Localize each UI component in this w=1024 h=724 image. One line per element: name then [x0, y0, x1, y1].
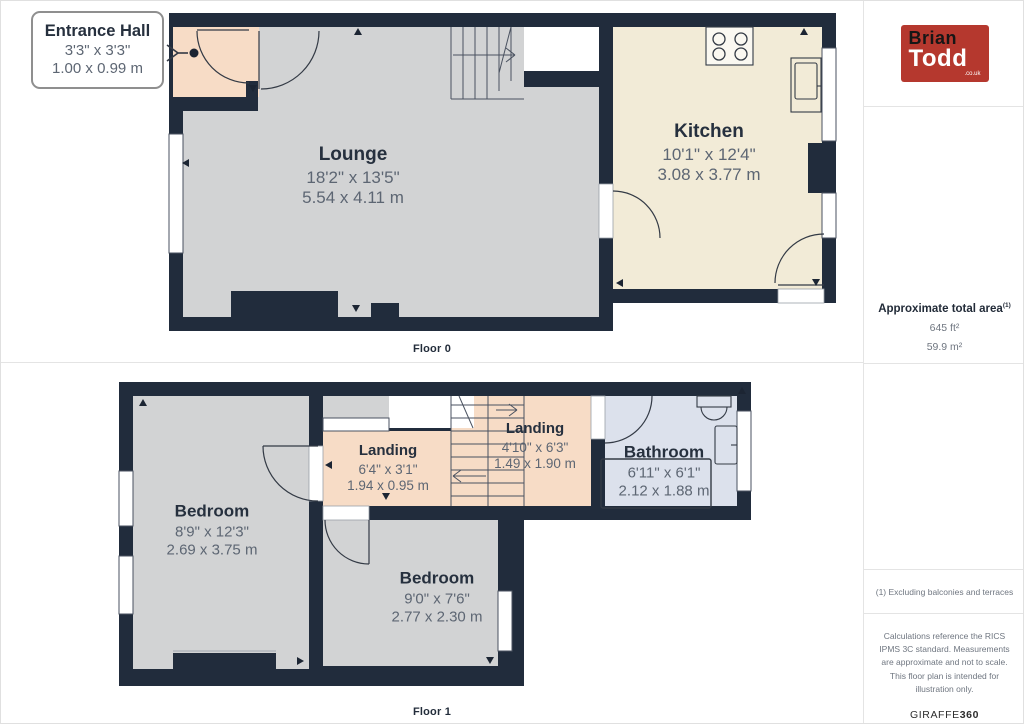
- kitchen-hob: [706, 27, 753, 65]
- room-label-bedroom1: Bedroom 8'9" x 12'3" 2.69 x 3.75 m: [167, 501, 258, 558]
- room-label-bedroom2: Bedroom 9'0" x 7'6" 2.77 x 2.30 m: [392, 568, 483, 625]
- logo-suffix-couk: .co.uk: [909, 71, 981, 77]
- disclaimer-text: Calculations reference the RICS IPMS 3C …: [877, 630, 1012, 696]
- floor1-plan-svg: [1, 364, 863, 724]
- room-label-lounge: Lounge 18'2" x 13'5" 5.54 x 4.11 m: [302, 144, 404, 209]
- logo-line-todd: Todd: [909, 47, 981, 71]
- room-label-bathroom: Bathroom 6'11" x 6'1" 2.12 x 1.88 m: [619, 442, 710, 499]
- floor0-stair-void: [524, 27, 599, 71]
- entrance-hall-callout: Entrance Hall 3'3" x 3'3" 1.00 x 0.99 m: [31, 11, 164, 89]
- brand-360: 360: [960, 709, 979, 721]
- agency-logo-section: Brian Todd .co.uk: [864, 1, 1024, 107]
- floor0-panel: Entrance Hall 3'3" x 3'3" 1.00 x 0.99 m …: [1, 1, 863, 363]
- landing-partition-window: [323, 418, 389, 431]
- total-area-ft: 645 ft²: [930, 322, 960, 334]
- floorplans-area: Entrance Hall 3'3" x 3'3" 1.00 x 0.99 m …: [1, 1, 863, 724]
- floor0-caption: Floor 0: [1, 343, 863, 355]
- sidebar-spacer: [864, 364, 1024, 570]
- callout-dim-imperial: 3'3" x 3'3": [65, 42, 131, 61]
- bedroom1-chimney-breast: [173, 653, 276, 669]
- total-area-section: Approximate total area(1) 645 ft² 59.9 m…: [864, 107, 1024, 364]
- brian-todd-logo: Brian Todd .co.uk: [901, 25, 989, 82]
- info-sidebar: Brian Todd .co.uk Approximate total area…: [863, 1, 1024, 724]
- total-area-m: 59.9 m²: [927, 341, 963, 353]
- callout-room-name: Entrance Hall: [45, 21, 150, 42]
- total-area-footnote-ref: (1): [1003, 302, 1011, 309]
- area-footnote: (1) Excluding balconies and terraces: [864, 570, 1024, 614]
- room-label-landing1: Landing 6'4" x 3'1" 1.94 x 0.95 m: [347, 442, 429, 494]
- disclaimer-section: Calculations reference the RICS IPMS 3C …: [864, 614, 1024, 724]
- giraffe360-brand: GIRAFFE360: [877, 709, 1012, 721]
- room-label-landing2: Landing 4'10" x 6'3" 1.49 x 1.90 m: [494, 420, 576, 472]
- callout-dim-metric: 1.00 x 0.99 m: [52, 60, 143, 79]
- total-area-title-text: Approximate total area: [878, 303, 1003, 315]
- floorplan-page: Entrance Hall 3'3" x 3'3" 1.00 x 0.99 m …: [0, 0, 1024, 724]
- floor1-caption: Floor 1: [1, 706, 863, 718]
- brand-giraffe: GIRAFFE: [910, 709, 960, 721]
- total-area-heading: Approximate total area(1): [878, 302, 1011, 315]
- floor1-panel: Bedroom 8'9" x 12'3" 2.69 x 3.75 m Landi…: [1, 364, 863, 724]
- room-label-kitchen: Kitchen 10'1" x 12'4" 3.08 x 3.77 m: [657, 121, 760, 186]
